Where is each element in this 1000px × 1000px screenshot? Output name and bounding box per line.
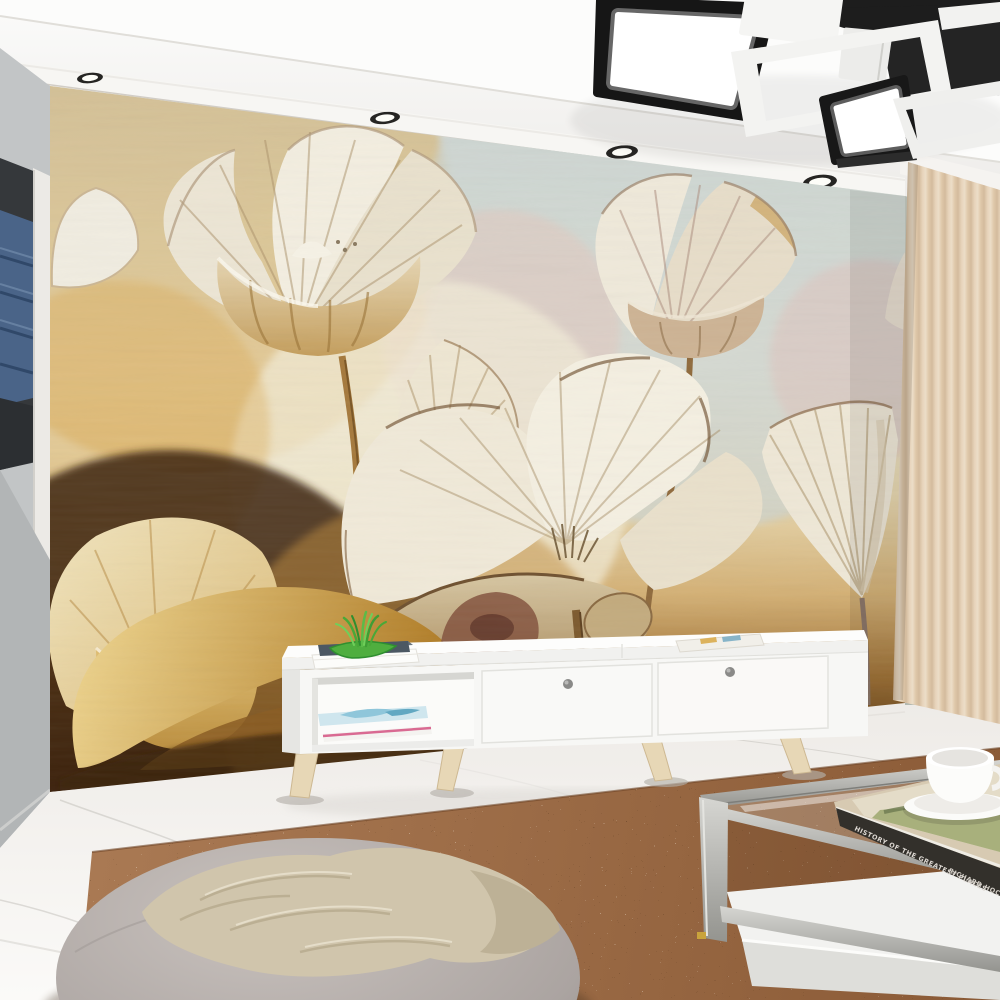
living-room-photo: HISTORY OF THE GREATEST PLACES RICHARD H… [0,0,1000,1000]
door-frame [33,168,50,560]
scene-canvas: HISTORY OF THE GREATEST PLACES RICHARD H… [0,0,1000,1000]
drawer-knob [563,679,573,689]
drawer-knob [725,667,735,677]
tv-stand-drawer-left [482,664,652,743]
tv-stand-drawer-right [658,656,828,735]
curtain [893,162,1000,724]
ceiling-light-fixture [570,0,1000,168]
left-wall [0,48,50,848]
tv-stand-open-shelf [312,672,474,752]
roman-blind [0,210,33,406]
